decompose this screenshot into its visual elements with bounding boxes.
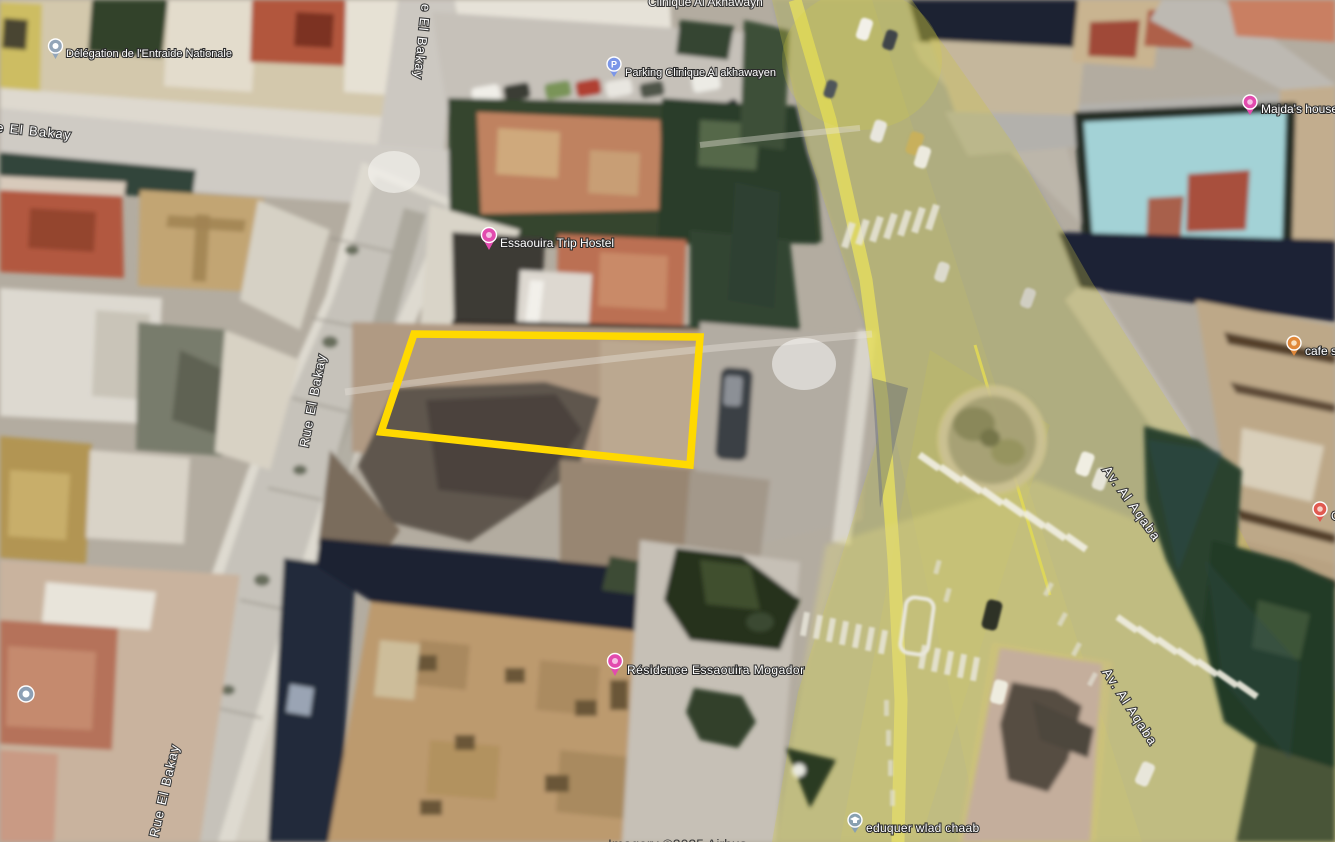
svg-text:Résidence Essaouira Mogador: Résidence Essaouira Mogador [627,663,805,677]
svg-text:Parking Clinique Al akhawayen: Parking Clinique Al akhawayen [625,67,776,79]
svg-text:Essaouira Trip Hostel: Essaouira Trip Hostel [500,236,614,250]
svg-text:Majda's house: Majda's house [1261,102,1335,116]
svg-text:Imagery ©2025 Airbus: Imagery ©2025 Airbus [608,836,747,842]
svg-text:cafe s: cafe s [1305,344,1335,358]
svg-text:P: P [611,60,617,70]
svg-text:eduquer wlad chaab: eduquer wlad chaab [866,821,980,835]
svg-text:Clinique Al Akhawayn: Clinique Al Akhawayn [648,0,763,9]
svg-text:C: C [1331,509,1335,523]
svg-text:Délégation de l'Entraide Natio: Délégation de l'Entraide Nationale [66,48,232,60]
